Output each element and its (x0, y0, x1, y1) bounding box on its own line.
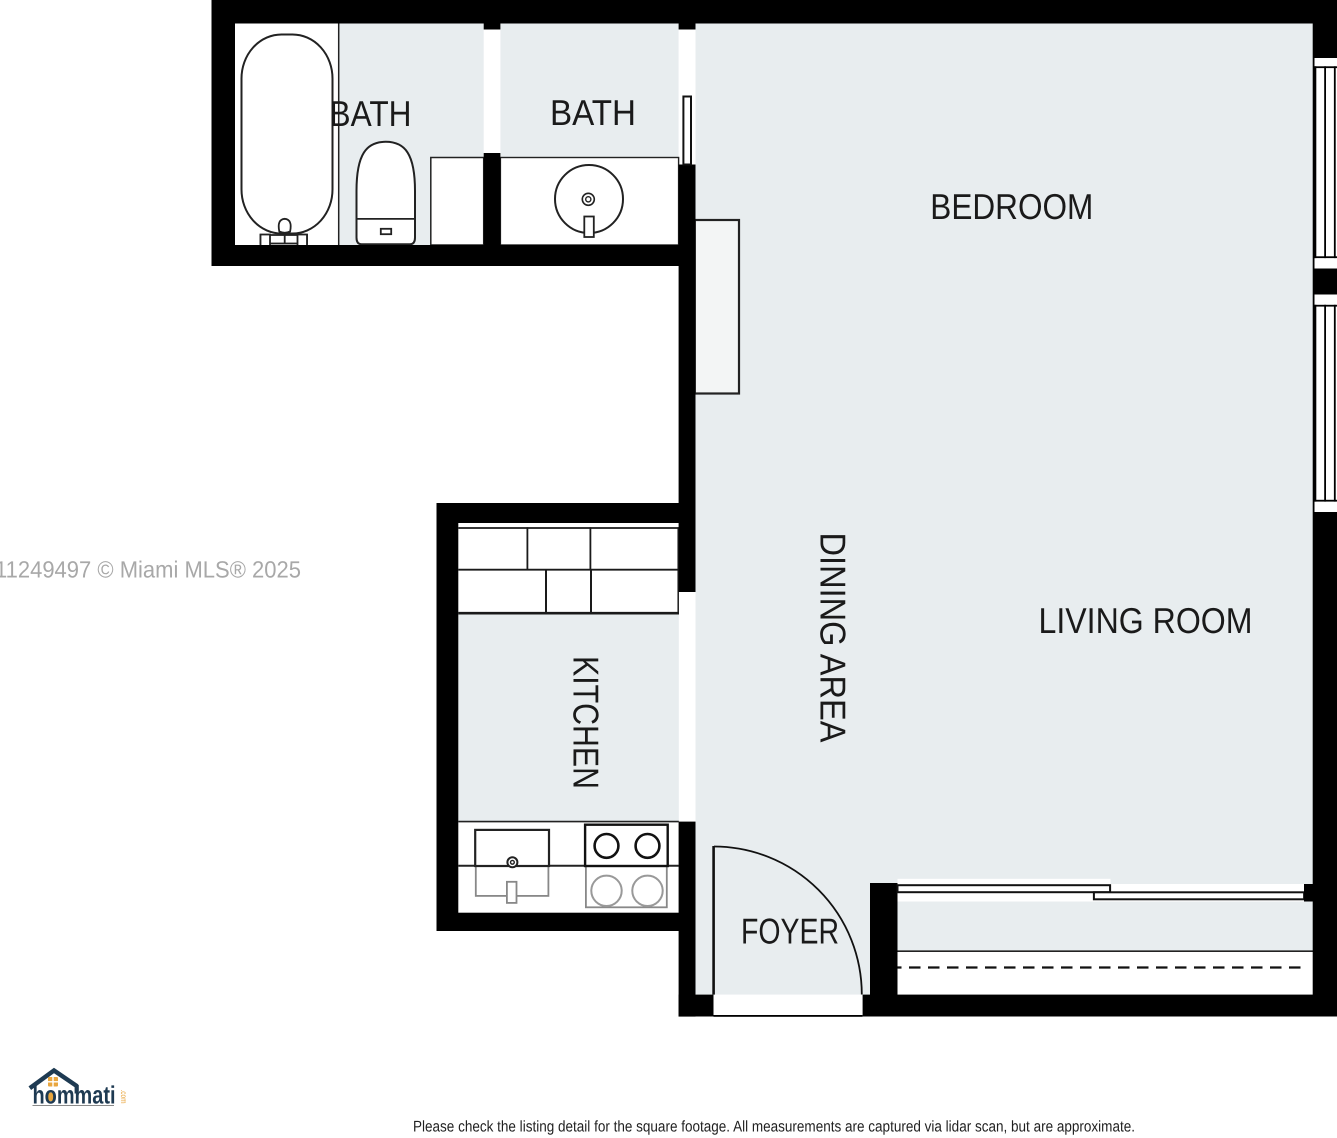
svg-text:BATH: BATH (550, 92, 636, 133)
svg-text:.com: .com (119, 1090, 129, 1104)
svg-text:BATH: BATH (330, 93, 412, 134)
svg-text:FOYER: FOYER (741, 911, 839, 952)
svg-text:BEDROOM: BEDROOM (930, 186, 1093, 227)
svg-text:Please check the listing detai: Please check the listing detail for the … (413, 1119, 1135, 1136)
svg-text:DINING AREA: DINING AREA (813, 533, 854, 743)
svg-text:LIVING ROOM: LIVING ROOM (1039, 600, 1253, 641)
svg-text:11249497 © Miami MLS® 2025: 11249497 © Miami MLS® 2025 (0, 556, 301, 582)
svg-text:KITCHEN: KITCHEN (565, 656, 606, 789)
